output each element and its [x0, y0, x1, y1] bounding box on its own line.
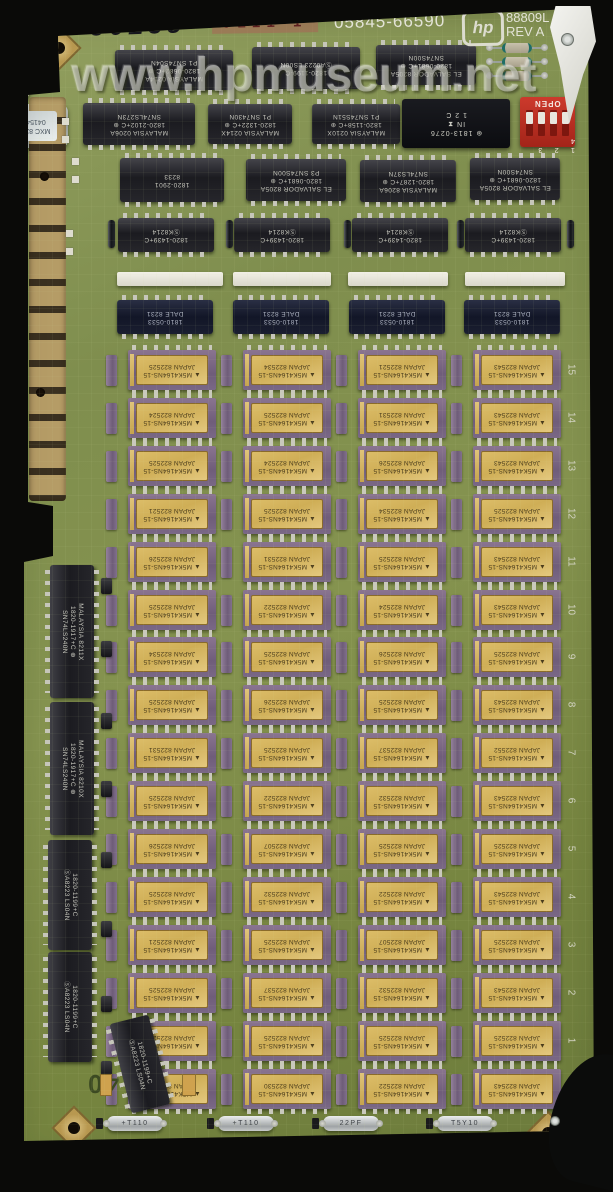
- ram-chip: ▲ M5K4164NS-15JAPAN 822525: [358, 829, 446, 869]
- ram-part-label: ▲ M5K4164NS-15: [143, 849, 200, 857]
- ram-datecode-label: JAPAN 822527: [149, 1033, 195, 1041]
- ram-chip: ▲ M5K4164NS-15JAPAN 822522: [358, 877, 446, 917]
- ram-chip-lid: ▲ M5K4164NS-15JAPAN 822525: [366, 547, 438, 577]
- pin1-stripe: [130, 833, 134, 865]
- buffer-chip: 1820-1439+CⓈK8214: [234, 218, 330, 252]
- capacitor-axial: [337, 787, 344, 815]
- dip-switch-numbers: 1 2 3 4: [520, 137, 575, 155]
- ram-chip: ▲ M5K4164NS-15JAPAN 822534: [243, 350, 331, 390]
- ram-chip-lid: ▲ M5K4164NS-15JAPAN 822525: [251, 642, 323, 672]
- capacitor-axial: [337, 500, 344, 528]
- row-number-label: 3: [566, 933, 577, 955]
- ram-chip-lid: ▲ M5K4164NS-15JAPAN 822525: [136, 690, 208, 720]
- capacitor-axial: [222, 500, 229, 528]
- ram-datecode-label: JAPAN 822543: [494, 1081, 540, 1089]
- capacitor: [106, 355, 117, 386]
- ram-chip: ▲ M5K4164NS-15JAPAN 822526: [128, 829, 216, 869]
- ram-chip-lid: ▲ M5K4164NS-15JAPAN 822525: [481, 1026, 553, 1056]
- capacitor: [336, 882, 347, 913]
- ram-chip-lid: ▲ M5K4164NS-15JAPAN 822543: [481, 355, 553, 385]
- capacitor: [106, 834, 117, 865]
- ram-part-label: ▲ M5K4164NS-15: [488, 562, 545, 570]
- pin1-stripe: [475, 450, 479, 482]
- pin1-stripe: [130, 689, 134, 721]
- ram-part-label: ▲ M5K4164NS-15: [143, 705, 200, 713]
- ram-part-label: ▲ M5K4164NS-15: [258, 657, 315, 665]
- ram-datecode-label: JAPAN 822522: [379, 889, 425, 897]
- buffer-chip-vertical: MALAYSIA 8211X1820-1917+C ⊕SN74LS240N: [50, 565, 94, 698]
- ram-datecode-label: JAPAN 822521: [379, 362, 425, 370]
- gold-pad: [182, 1074, 196, 1096]
- ram-part-label: ▲ M5K4164NS-15: [258, 993, 315, 1001]
- ram-part-label: ▲ M5K4164NS-15: [143, 514, 200, 522]
- capacitor: [451, 355, 462, 386]
- resistor-network: 1810-0533DALE 8231: [233, 300, 329, 334]
- pin1-stripe: [475, 977, 479, 1009]
- ram-part-label: ▲ M5K4164NS-15: [143, 801, 200, 809]
- pin1-stripe: [130, 881, 134, 913]
- capacitor: [106, 642, 117, 673]
- ram-part-label: ▲ M5K4164NS-15: [373, 993, 430, 1001]
- capacitor: [336, 595, 347, 626]
- ram-part-label: ▲ M5K4164NS-15: [373, 466, 430, 474]
- capacitor: [106, 882, 117, 913]
- capacitor: [451, 642, 462, 673]
- ram-chip-lid: ▲ M5K4164NS-15JAPAN 822552: [481, 738, 553, 768]
- ram-chip: ▲ M5K4164NS-15JAPAN 822525: [243, 637, 331, 677]
- ram-datecode-label: JAPAN 822530: [264, 1081, 310, 1089]
- ram-part-label: ▲ M5K4164NS-15: [258, 945, 315, 953]
- ram-chip: ▲ M5K4164NS-15JAPAN 822521: [358, 350, 446, 390]
- slot-marking: 40: [86, 1068, 119, 1099]
- ram-datecode-label: JAPAN 822543: [494, 985, 540, 993]
- ram-part-label: ▲ M5K4164NS-15: [143, 466, 200, 474]
- capacitor: [106, 451, 117, 482]
- capacitor: [451, 547, 462, 578]
- pin1-stripe: [360, 641, 364, 673]
- logic-chip: EL SALVADOR 8205A1820-0681+C ⊕SN74S00N: [470, 158, 560, 200]
- ram-part-label: ▲ M5K4164NS-15: [143, 657, 200, 665]
- smd-pad: [72, 158, 79, 165]
- ram-chip-lid: ▲ M5K4164NS-15JAPAN 822525: [481, 499, 553, 529]
- ram-datecode-label: JAPAN 822524: [149, 410, 195, 418]
- ram-part-label: ▲ M5K4164NS-15: [373, 705, 430, 713]
- ram-part-label: ▲ M5K4164NS-15: [258, 801, 315, 809]
- ram-chip: ▲ M5K4164NS-15JAPAN 822507: [358, 925, 446, 965]
- row-number-label: 13: [566, 454, 577, 476]
- ram-part-label: ▲ M5K4164NS-15: [258, 418, 315, 426]
- pin1-stripe: [360, 833, 364, 865]
- ink-stamp: 0111 1: [212, 11, 319, 34]
- capacitor: [336, 451, 347, 482]
- ram-chip-lid: ▲ M5K4164NS-15JAPAN 822524: [251, 451, 323, 481]
- ram-chip-lid: ▲ M5K4164NS-15JAPAN 822522: [366, 882, 438, 912]
- row-number-label: 1: [566, 1029, 577, 1051]
- capacitor-axial: [222, 883, 229, 911]
- ram-datecode-label: JAPAN 822525: [149, 602, 195, 610]
- watermark: www.hpmuseum.net: [28, 48, 580, 103]
- ram-chip-lid: ▲ M5K4164NS-15JAPAN 822531: [366, 403, 438, 433]
- white-strip: [465, 272, 565, 286]
- ram-datecode-label: JAPAN 822537: [379, 745, 425, 753]
- sticker-text: P14136: [7, 20, 24, 84]
- pin1-stripe: [130, 354, 134, 386]
- capacitor: [221, 834, 232, 865]
- delay-line: T5Y10: [437, 1116, 493, 1131]
- logic-chip: MALAYSIA 0214X1820-1322+C ⊕P1 SN7430N: [208, 104, 292, 144]
- ram-datecode-label: JAPAN 822534: [379, 506, 425, 514]
- capacitor-axial: [222, 931, 229, 959]
- ram-chip: ▲ M5K4164NS-15JAPAN 822525: [358, 685, 446, 725]
- ram-datecode-label: JAPAN 822525: [264, 1033, 310, 1041]
- ram-chip: ▲ M5K4164NS-15JAPAN 822526: [358, 637, 446, 677]
- ram-datecode-label: JAPAN 822525: [264, 745, 310, 753]
- resistor-network: 1810-0533DALE 8231: [464, 300, 560, 334]
- capacitor-axial: [452, 1075, 459, 1103]
- capacitor: [336, 1074, 347, 1105]
- ram-datecode-label: JAPAN 822507: [379, 937, 425, 945]
- capacitor-axial: [452, 979, 459, 1007]
- pin1-stripe: [245, 977, 249, 1009]
- capacitor: [106, 499, 117, 530]
- capacitor-axial: [222, 787, 229, 815]
- ram-chip-lid: ▲ M5K4164NS-15JAPAN 822534: [366, 499, 438, 529]
- capacitor-axial: [337, 739, 344, 767]
- capacitor: [106, 1074, 117, 1105]
- capacitor: [451, 930, 462, 961]
- ram-chip: ▲ M5K4164NS-15JAPAN 822521: [128, 494, 216, 534]
- ram-datecode-label: JAPAN 822526: [149, 841, 195, 849]
- ram-chip-lid: ▲ M5K4164NS-15JAPAN 822525: [366, 834, 438, 864]
- pin1-stripe: [475, 833, 479, 865]
- capacitor: [221, 355, 232, 386]
- capacitor: [221, 738, 232, 769]
- ram-datecode-label: JAPAN 822522: [264, 793, 310, 801]
- pin1-stripe: [360, 1025, 364, 1057]
- transistor: [101, 921, 112, 937]
- capacitor-axial: [222, 1075, 229, 1103]
- ram-datecode-label: JAPAN 822525: [149, 362, 195, 370]
- capacitor: [336, 738, 347, 769]
- ram-datecode-label: JAPAN 822552: [494, 745, 540, 753]
- ram-chip-lid: ▲ M5K4164NS-15JAPAN 822527: [136, 1026, 208, 1056]
- ram-part-label: ▲ M5K4164NS-15: [373, 1089, 430, 1097]
- ram-part-label: ▲ M5K4164NS-15: [143, 562, 200, 570]
- capacitor: [451, 690, 462, 721]
- ram-chip: ▲ M5K4164NS-15JAPAN 822552: [473, 733, 561, 773]
- ram-chip-lid: ▲ M5K4164NS-15JAPAN 822537: [251, 978, 323, 1008]
- ram-chip: ▲ M5K4164NS-15JAPAN 822525: [128, 781, 216, 821]
- ram-chip: ▲ M5K4164NS-15JAPAN 822543: [473, 398, 561, 438]
- capacitor-axial: [337, 883, 344, 911]
- capacitor: [221, 690, 232, 721]
- capacitor: [221, 451, 232, 482]
- ram-part-label: ▲ M5K4164NS-15: [258, 753, 315, 761]
- ram-chip-lid: ▲ M5K4164NS-15JAPAN 822525: [251, 1026, 323, 1056]
- serial-marking: 88809L: [506, 10, 549, 25]
- ram-chip: ▲ M5K4164NS-15JAPAN 822521: [128, 925, 216, 965]
- ram-part-label: ▲ M5K4164NS-15: [143, 610, 200, 618]
- ram-part-label: ▲ M5K4164NS-15: [143, 1041, 200, 1049]
- ram-chip-lid: ▲ M5K4164NS-15JAPAN 822525: [366, 690, 438, 720]
- capacitor: [221, 547, 232, 578]
- capacitor-axial: [337, 356, 344, 384]
- ram-part-label: ▲ M5K4164NS-15: [143, 370, 200, 378]
- ram-chip: ▲ M5K4164NS-15JAPAN 822531: [243, 542, 331, 582]
- capacitor: [336, 930, 347, 961]
- ram-chip-lid: ▲ M5K4164NS-15JAPAN 822543: [481, 786, 553, 816]
- pin1-stripe: [245, 498, 249, 530]
- ram-chip: ▲ M5K4164NS-15JAPAN 822522: [243, 781, 331, 821]
- ram-chip: ▲ M5K4164NS-15JAPAN 822525: [358, 1021, 446, 1061]
- capacitor-axial: [222, 452, 229, 480]
- connector-hole: [40, 172, 49, 181]
- capacitor: [106, 786, 117, 817]
- ram-part-label: ▲ M5K4164NS-15: [488, 993, 545, 1001]
- ram-datecode-label: JAPAN 822507: [264, 841, 310, 849]
- pin1-stripe: [360, 929, 364, 961]
- ram-chip-lid: ▲ M5K4164NS-15JAPAN 822532: [251, 882, 323, 912]
- ram-chip-lid: ▲ M5K4164NS-15JAPAN 822543: [481, 595, 553, 625]
- resistor-network: 1810-0533DALE 8231: [117, 300, 213, 334]
- ram-datecode-label: JAPAN 822531: [264, 554, 310, 562]
- ram-part-label: ▲ M5K4164NS-15: [373, 370, 430, 378]
- capacitor-axial: [567, 220, 574, 248]
- ram-chip: ▲ M5K4164NS-15JAPAN 822527: [128, 1021, 216, 1061]
- capacitor-axial: [222, 691, 229, 719]
- ram-chip: ▲ M5K4164NS-15JAPAN 822525: [358, 542, 446, 582]
- ram-chip: ▲ M5K4164NS-15JAPAN 822525: [128, 1069, 216, 1109]
- capacitor-axial: [222, 404, 229, 432]
- pin1-stripe: [130, 1025, 134, 1057]
- capacitor-axial: [222, 356, 229, 384]
- pin1-stripe: [130, 929, 134, 961]
- capacitor-axial: [222, 739, 229, 767]
- ram-datecode-label: JAPAN 822525: [149, 985, 195, 993]
- transistor: [101, 713, 112, 729]
- ram-datecode-label: JAPAN 822521: [149, 937, 195, 945]
- capacitor: [106, 738, 117, 769]
- pin1-stripe: [475, 737, 479, 769]
- buffer-chip: 1820-1439+CⓈK8214: [352, 218, 448, 252]
- smd-pad: [72, 176, 79, 183]
- ram-datecode-label: JAPAN 822525: [149, 793, 195, 801]
- ram-chip: ▲ M5K4164NS-15JAPAN 822543: [473, 973, 561, 1013]
- capacitor-axial: [222, 979, 229, 1007]
- logic-chip: MALAYSIA 0206A1820-2102+C ⊕SN74LS273N: [83, 103, 195, 145]
- pin1-stripe: [360, 498, 364, 530]
- capacitor-axial: [222, 1027, 229, 1055]
- logic-chip-vertical: 1820-1199+CⓈA8223 LS04N: [48, 952, 92, 1062]
- screw: [550, 1116, 560, 1126]
- transistor: [101, 852, 112, 868]
- pin1-stripe: [360, 737, 364, 769]
- ram-chip: ▲ M5K4164NS-15JAPAN 822543: [473, 685, 561, 725]
- row-number-label: 8: [566, 694, 577, 716]
- ram-chip: ▲ M5K4164NS-15JAPAN 822524: [128, 398, 216, 438]
- ram-chip-lid: ▲ M5K4164NS-15JAPAN 822532: [366, 786, 438, 816]
- row-number-label: 14: [566, 406, 577, 428]
- ram-chip: ▲ M5K4164NS-15JAPAN 822525: [128, 877, 216, 917]
- row-number-label: 12: [566, 502, 577, 524]
- ram-part-label: ▲ M5K4164NS-15: [488, 418, 545, 426]
- capacitor-axial: [452, 835, 459, 863]
- pin1-stripe: [130, 641, 134, 673]
- capacitor: [336, 499, 347, 530]
- ram-chip-lid: ▲ M5K4164NS-15JAPAN 822525: [251, 499, 323, 529]
- capacitor-axial: [222, 835, 229, 863]
- ram-chip: ▲ M5K4164NS-15JAPAN 822543: [473, 446, 561, 486]
- pin1-stripe: [475, 498, 479, 530]
- ram-chip: ▲ M5K4164NS-15JAPAN 822534: [128, 637, 216, 677]
- scanned-pcb-photo: { "watermark": "www.hpmuseum.net", "top_…: [0, 0, 613, 1176]
- logic-chip: 1820-29018233: [120, 158, 224, 202]
- ram-chip: ▲ M5K4164NS-15JAPAN 822525: [128, 446, 216, 486]
- pin1-stripe: [245, 737, 249, 769]
- ram-datecode-label: JAPAN 822543: [494, 697, 540, 705]
- ram-chip-lid: ▲ M5K4164NS-15JAPAN 822524: [136, 403, 208, 433]
- capacitor-axial: [337, 1075, 344, 1103]
- pin1-stripe: [475, 1025, 479, 1057]
- ram-chip: ▲ M5K4164NS-15JAPAN 822534: [358, 494, 446, 534]
- ram-chip: ▲ M5K4164NS-15JAPAN 822522: [243, 590, 331, 630]
- ram-datecode-label: JAPAN 822525: [494, 506, 540, 514]
- pin1-stripe: [245, 689, 249, 721]
- ram-datecode-label: JAPAN 822543: [494, 458, 540, 466]
- row-number-label: 4: [566, 885, 577, 907]
- capacitor: [451, 882, 462, 913]
- ram-chip: ▲ M5K4164NS-15JAPAN 822525: [473, 1021, 561, 1061]
- ram-chip: ▲ M5K4164NS-15JAPAN 822524: [243, 446, 331, 486]
- ram-chip-lid: ▲ M5K4164NS-15JAPAN 822543: [481, 547, 553, 577]
- row-number-label: 9: [566, 646, 577, 668]
- ram-chip-lid: ▲ M5K4164NS-15JAPAN 822526: [136, 547, 208, 577]
- capacitor-axial: [452, 548, 459, 576]
- smd-pad: [62, 118, 69, 125]
- capacitor: [106, 1026, 117, 1057]
- ram-datecode-label: JAPAN 822525: [494, 841, 540, 849]
- ram-chip-lid: ▲ M5K4164NS-15JAPAN 822525: [136, 595, 208, 625]
- row-number-label: 15: [566, 359, 577, 381]
- ram-chip-lid: ▲ M5K4164NS-15JAPAN 822507: [366, 930, 438, 960]
- capacitor: [106, 690, 117, 721]
- ram-part-label: ▲ M5K4164NS-15: [373, 418, 430, 426]
- capacitor: [221, 786, 232, 817]
- pin1-stripe: [245, 929, 249, 961]
- ram-chip-lid: ▲ M5K4164NS-15JAPAN 822531: [136, 738, 208, 768]
- ram-datecode-label: JAPAN 822524: [264, 458, 310, 466]
- pin1-stripe: [130, 498, 134, 530]
- ram-chip: ▲ M5K4164NS-15JAPAN 822525: [128, 685, 216, 725]
- logic-chip: EL SALVADOR 8205A1820-0681+C ⊕P3 SN74S00…: [246, 159, 346, 201]
- ram-datecode-label: JAPAN 822526: [149, 554, 195, 562]
- ram-datecode-label: JAPAN 822524: [379, 602, 425, 610]
- ram-chip: ▲ M5K4164NS-15JAPAN 822524: [358, 590, 446, 630]
- ram-part-label: ▲ M5K4164NS-15: [488, 1041, 545, 1049]
- pin1-stripe: [475, 402, 479, 434]
- pin1-stripe: [245, 785, 249, 817]
- ram-datecode-label: JAPAN 822534: [264, 362, 310, 370]
- ram-chip-lid: ▲ M5K4164NS-15JAPAN 822521: [136, 930, 208, 960]
- capacitor: [221, 1074, 232, 1105]
- dip-switch-slider: [538, 110, 545, 136]
- capacitor-axial: [452, 883, 459, 911]
- ram-datecode-label: JAPAN 822521: [149, 506, 195, 514]
- hp-logo: hp: [462, 10, 505, 47]
- capacitor-axial: [337, 643, 344, 671]
- ram-datecode-label: JAPAN 822525: [149, 1081, 195, 1089]
- pin1-stripe: [360, 354, 364, 386]
- ram-chip-lid: ▲ M5K4164NS-15JAPAN 822534: [136, 642, 208, 672]
- ram-chip-lid: ▲ M5K4164NS-15JAPAN 822521: [136, 499, 208, 529]
- capacitor-axial: [222, 643, 229, 671]
- pin1-stripe: [360, 402, 364, 434]
- pin1-stripe: [475, 689, 479, 721]
- pin1-stripe: [245, 354, 249, 386]
- capacitor: [451, 1026, 462, 1057]
- pin1-stripe: [245, 641, 249, 673]
- gold-pad: [100, 1074, 112, 1096]
- ram-datecode-label: JAPAN 822522: [264, 602, 310, 610]
- ram-datecode-label: JAPAN 822525: [149, 889, 195, 897]
- ram-chip-lid: ▲ M5K4164NS-15JAPAN 822525: [481, 642, 553, 672]
- ram-chip: ▲ M5K4164NS-15JAPAN 822525: [243, 925, 331, 965]
- ram-part-label: ▲ M5K4164NS-15: [143, 945, 200, 953]
- capacitor: [451, 1074, 462, 1105]
- ram-chip: ▲ M5K4164NS-15JAPAN 822525: [243, 494, 331, 534]
- capacitor-axial: [452, 356, 459, 384]
- ram-chip: ▲ M5K4164NS-15JAPAN 822525: [243, 733, 331, 773]
- ram-part-label: ▲ M5K4164NS-15: [488, 705, 545, 713]
- ram-part-label: ▲ M5K4164NS-15: [258, 514, 315, 522]
- ram-chip-lid: ▲ M5K4164NS-15JAPAN 822525: [366, 1026, 438, 1056]
- capacitor-axial: [344, 220, 351, 248]
- transistor: [101, 578, 112, 594]
- row-number-label: 6: [566, 790, 577, 812]
- pin1-stripe: [475, 594, 479, 626]
- pin1-stripe: [360, 881, 364, 913]
- capacitor: [336, 642, 347, 673]
- pin1-stripe: [360, 785, 364, 817]
- ram-part-label: ▲ M5K4164NS-15: [373, 1041, 430, 1049]
- logic-chip-vertical: 1820-1199+CⓈA8223 LS04N: [109, 1015, 170, 1114]
- logic-chip: MALAYSIA 8206A1820-1287+C ⊕SN74LS37N: [360, 160, 456, 202]
- ram-datecode-label: JAPAN 822526: [379, 458, 425, 466]
- ram-datecode-label: JAPAN 822534: [149, 649, 195, 657]
- transistor: [101, 996, 112, 1012]
- ram-datecode-label: JAPAN 822525: [264, 649, 310, 657]
- ram-chip: ▲ M5K4164NS-15JAPAN 822522: [358, 1069, 446, 1109]
- capacitor-axial: [337, 979, 344, 1007]
- ram-chip: ▲ M5K4164NS-15JAPAN 822526: [243, 685, 331, 725]
- ram-chip-lid: ▲ M5K4164NS-15JAPAN 822525: [136, 882, 208, 912]
- capacitor: [106, 978, 117, 1009]
- buffer-chip: 1820-1439+CⓈK8214: [465, 218, 561, 252]
- crystal-label: MXC 8222: [17, 126, 50, 135]
- ram-part-label: ▲ M5K4164NS-15: [373, 849, 430, 857]
- pin1-stripe: [475, 354, 479, 386]
- ram-chip-lid: ▲ M5K4164NS-15JAPAN 822543: [481, 882, 553, 912]
- ram-chip: ▲ M5K4164NS-15JAPAN 822525: [473, 637, 561, 677]
- crystal-oscillator: MXC 8222 041540: [0, 104, 68, 148]
- ram-datecode-label: JAPAN 822543: [494, 602, 540, 610]
- capacitor: [221, 1026, 232, 1057]
- ram-chip: ▲ M5K4164NS-15JAPAN 822543: [473, 877, 561, 917]
- ram-chip-lid: ▲ M5K4164NS-15JAPAN 822525: [136, 355, 208, 385]
- smd-pad: [66, 248, 73, 255]
- capacitor: [336, 1026, 347, 1057]
- ram-part-label: ▲ M5K4164NS-15: [488, 801, 545, 809]
